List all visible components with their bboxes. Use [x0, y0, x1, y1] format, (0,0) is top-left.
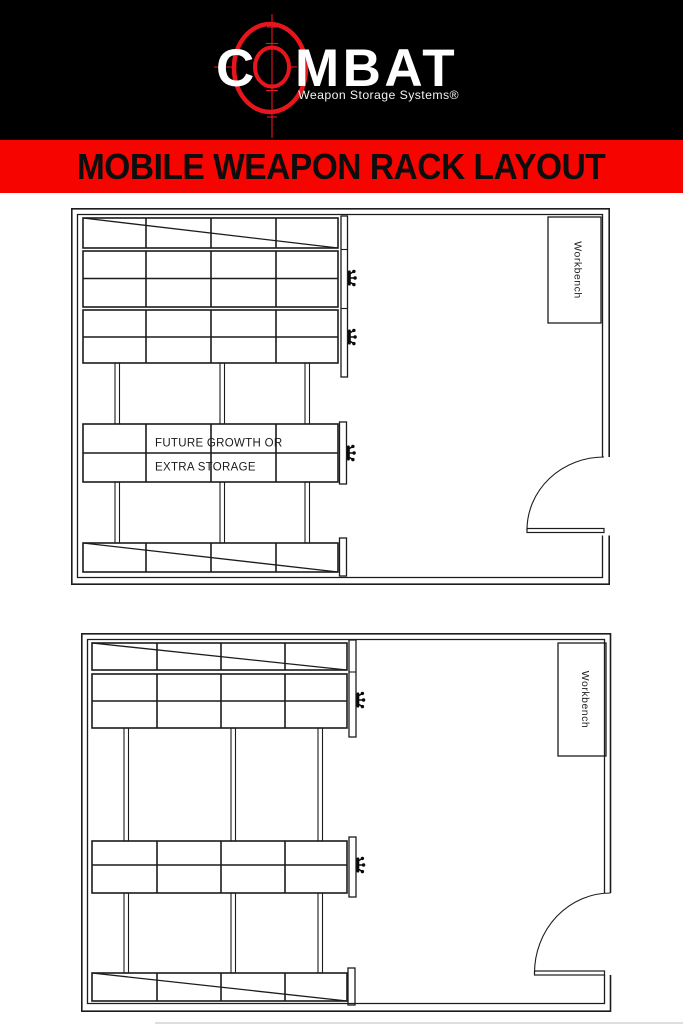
page-bottom-divider [155, 1022, 683, 1024]
crank-handle-icon [357, 857, 366, 874]
page-root: C MBAT Weapon Storage Systems® MOBILE WE… [0, 0, 683, 1024]
floor-plan-bottom: Workbench [81, 633, 612, 1012]
floor-track-rails [124, 893, 323, 973]
logo-tagline: Weapon Storage Systems® [298, 88, 459, 102]
door-swing-icon [527, 457, 604, 533]
future-growth-label-line1: FUTURE GROWTH OR [155, 438, 282, 450]
weapon-rack-row-3 [83, 310, 338, 363]
combat-logo: C MBAT Weapon Storage Systems® [200, 10, 490, 140]
carriage-end-bar [341, 216, 348, 377]
floor-track-rails [124, 728, 323, 841]
floor-plan-top: Workbench [71, 208, 610, 585]
carriage-end-bar [349, 640, 356, 737]
future-growth-label-line2: EXTRA STORAGE [155, 462, 256, 474]
door-swing-icon [535, 893, 611, 975]
brand-header: C MBAT Weapon Storage Systems® [0, 0, 683, 140]
crank-handle-icon [348, 270, 357, 287]
weapon-rack-middle [92, 837, 356, 897]
weapon-rack-row-1 [92, 643, 347, 670]
weapon-rack-row-2 [92, 674, 347, 728]
workbench-label: Workbench [579, 671, 591, 728]
weapon-rack-row-2 [83, 251, 338, 307]
workbench-label: Workbench [572, 241, 584, 298]
logo-text-c: C [216, 39, 254, 98]
rack-diagonal [92, 973, 347, 1001]
crank-handle-icon [357, 692, 366, 709]
crank-handle-icon [347, 445, 356, 462]
crank-handle-icon [348, 329, 357, 346]
page-title: MOBILE WEAPON RACK LAYOUT [77, 146, 605, 188]
title-banner: MOBILE WEAPON RACK LAYOUT [0, 140, 683, 193]
floor-track-rails [115, 363, 310, 424]
workbench: Workbench [548, 217, 601, 323]
floor-track-rails [115, 482, 310, 543]
weapon-rack-row-1 [83, 218, 338, 248]
room-walls [82, 634, 611, 1011]
workbench: Workbench [558, 643, 606, 756]
weapon-rack-future-growth [83, 422, 347, 484]
weapon-rack-row-bottom [92, 968, 355, 1005]
rack-diagonal [92, 643, 347, 670]
weapon-rack-row-bottom [83, 538, 347, 576]
